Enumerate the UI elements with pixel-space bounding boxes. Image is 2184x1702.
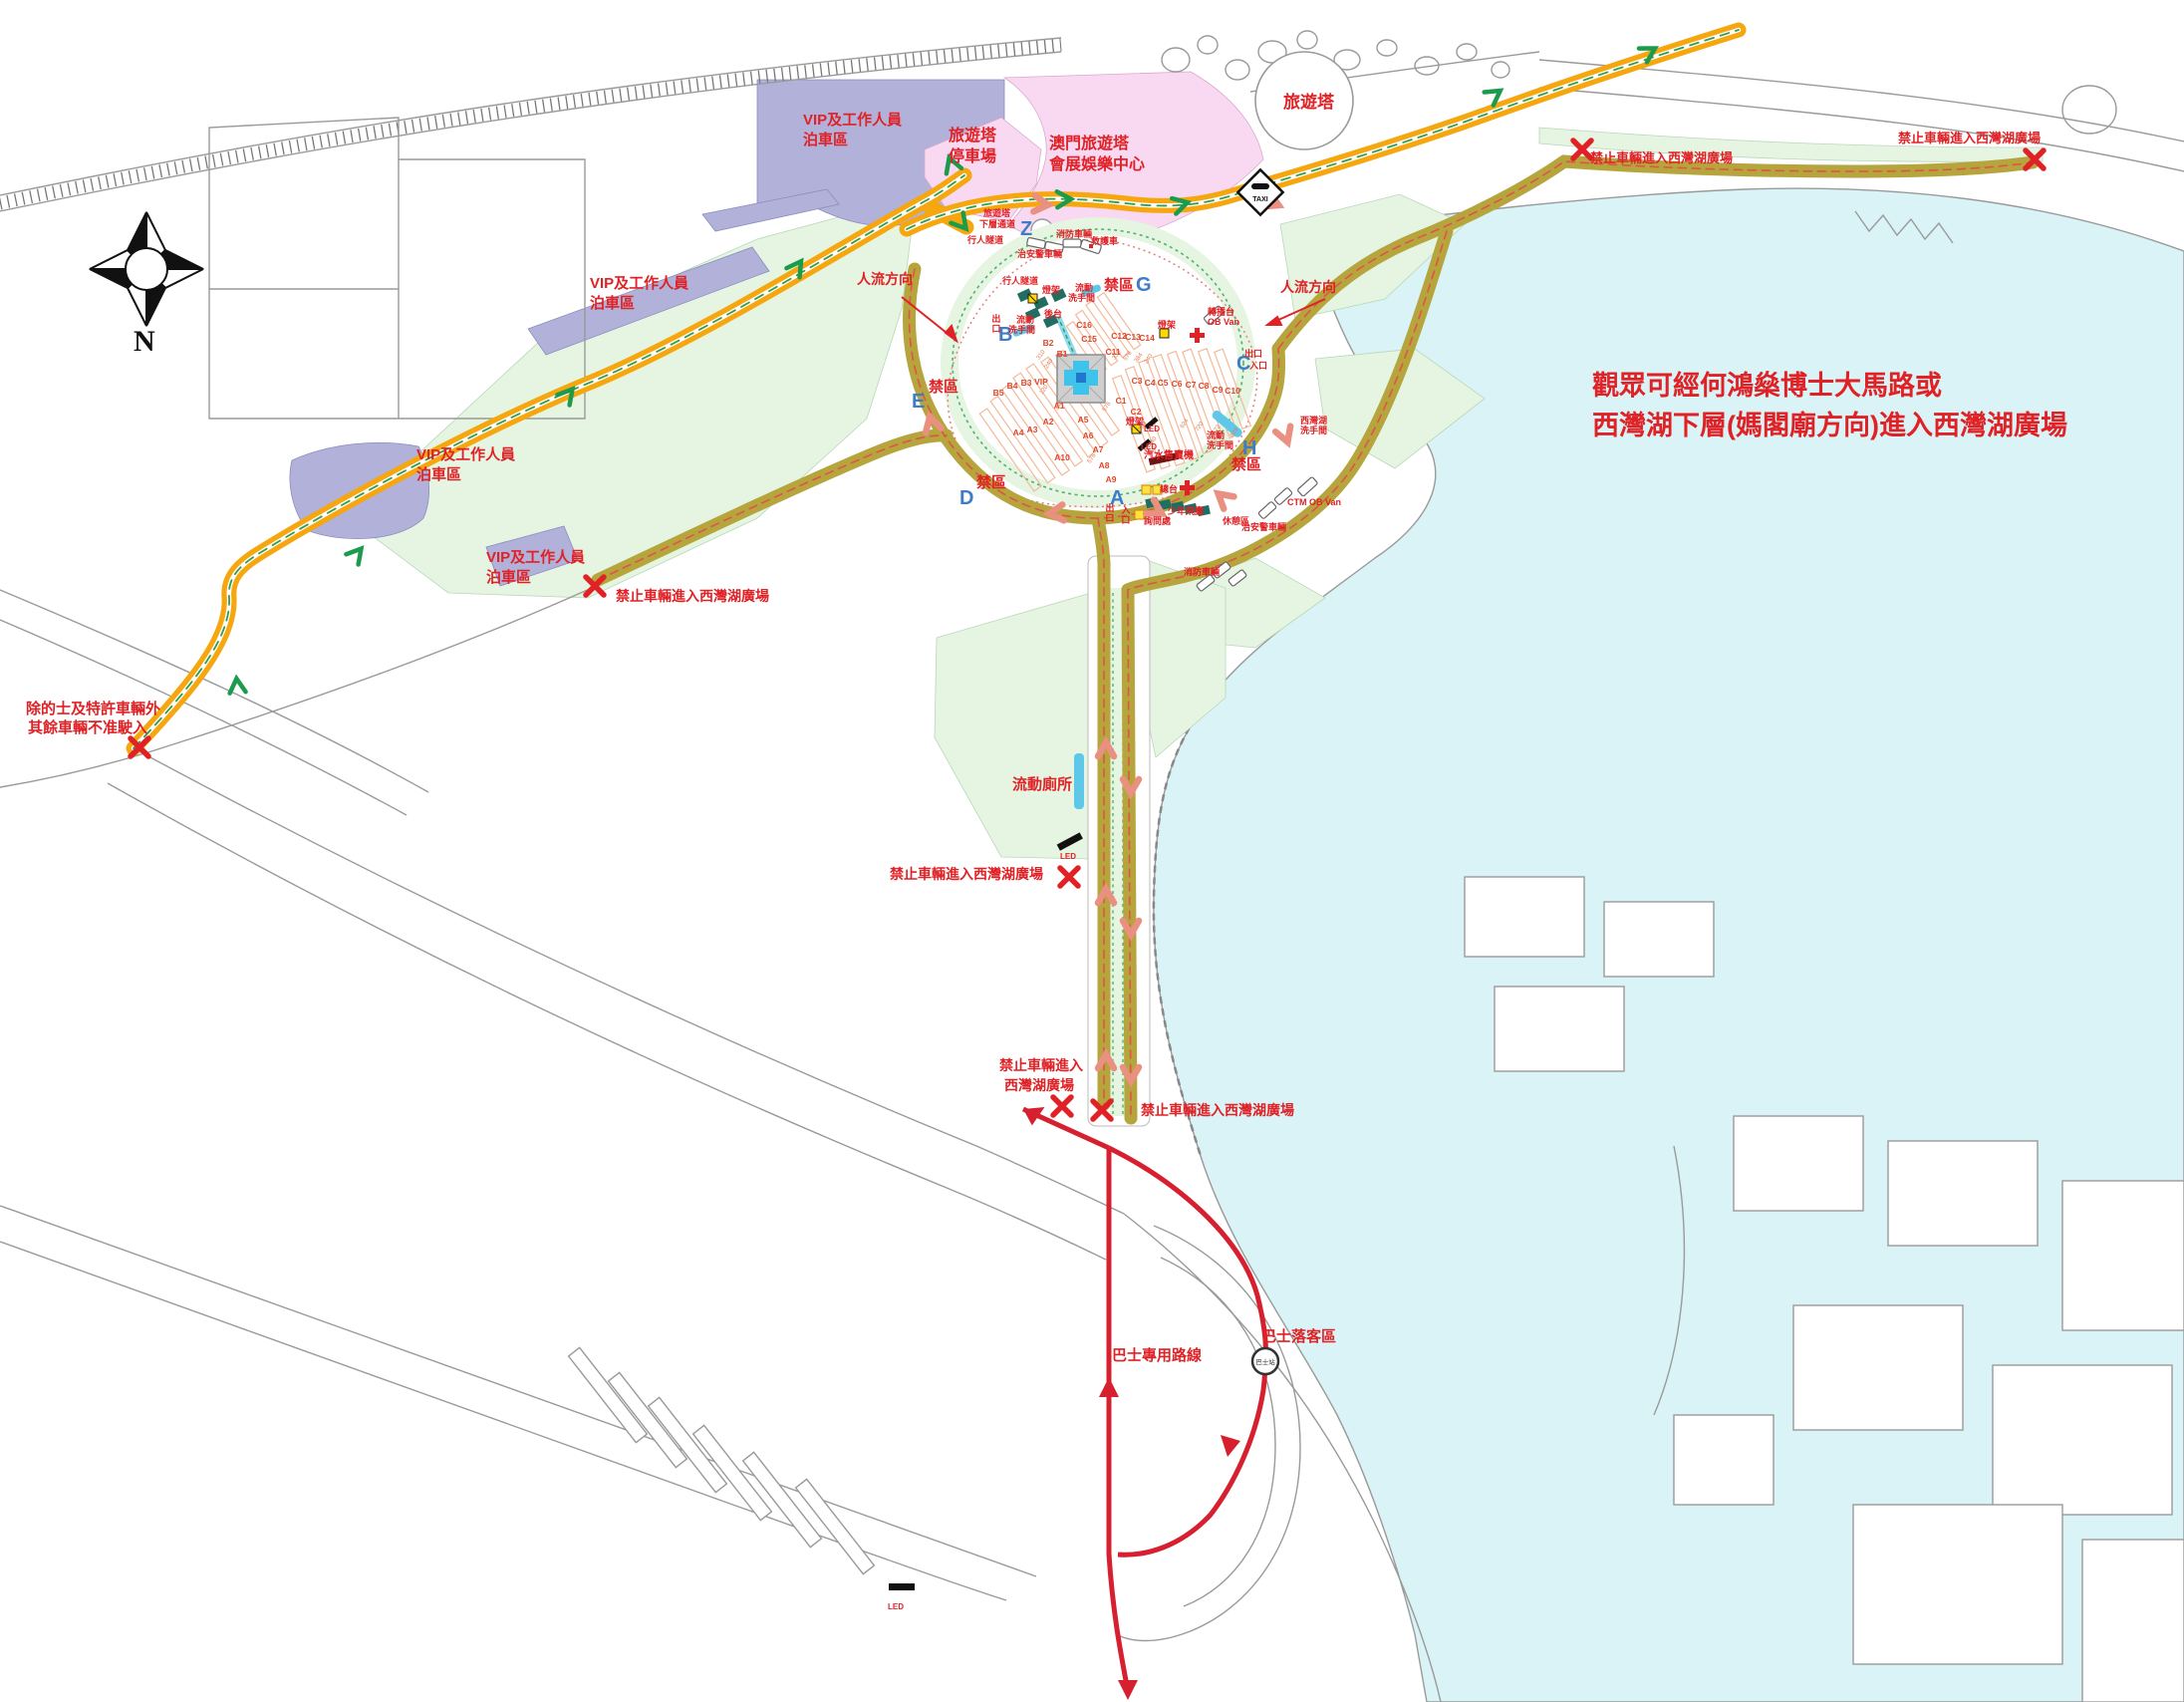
tower-label: 旅遊塔	[1283, 93, 1334, 113]
seat-section-label: C2	[1131, 407, 1142, 417]
mobile-toilet-label: 流動	[1016, 315, 1034, 325]
zone-letter-h: H	[1242, 438, 1256, 458]
taxi-only-label: 除的士及特許車輛外	[26, 701, 160, 717]
seat-section-label: A6	[1083, 430, 1094, 440]
seat-section-label: A7	[1093, 444, 1104, 454]
fire-vehicles-label: 消防車輛	[1184, 567, 1220, 577]
bus-route-arrows	[1021, 1104, 1240, 1700]
flow-direction-label: 人流方向	[857, 271, 913, 287]
seat-section-label: B1	[1057, 349, 1068, 359]
seat-section-label: A9	[1106, 474, 1117, 484]
seat-section-label: B5	[993, 388, 1004, 398]
light-rig-label: 燈架	[1158, 320, 1176, 330]
zone-letter-d: D	[959, 488, 973, 508]
vip-parking-label: 泊車區	[803, 132, 848, 148]
ctm-ob-van-label: CTM OB Van	[1287, 497, 1341, 507]
police-vehicles-label: 治安警車輛	[1241, 522, 1286, 532]
vip-parking-label: 泊車區	[416, 466, 461, 483]
convention-centre-label: 澳門旅遊塔	[1049, 136, 1129, 153]
zone-letter-g: G	[1136, 275, 1152, 295]
vip-parking-label: VIP及工作人員	[416, 446, 515, 463]
seat-section-label: C8	[1199, 381, 1210, 391]
bus-stop-marker: 巴士站	[1252, 1348, 1278, 1374]
vip-parking-label: 泊車區	[486, 569, 531, 586]
flow-direction-label: 人流方向	[1280, 279, 1336, 295]
tower-carpark-label: 停車場	[949, 148, 996, 166]
seat-section-label: C16	[1076, 320, 1092, 330]
vip-parking-label: VIP及工作人員	[590, 275, 688, 292]
event-traffic-map: TAXI 巴士站 A1 A2 A3 A4 A5 A6 A7 A8 A9 A10 …	[0, 0, 2184, 1702]
lake-wc-label: 洗手間	[1300, 425, 1327, 435]
seat-section-label: C5	[1158, 378, 1169, 388]
seat-section-label: B3	[1021, 378, 1032, 388]
lake-wc-label: 西灣湖	[1300, 416, 1327, 425]
seat-section-label: C7	[1186, 380, 1197, 390]
exit-label: 出口	[1244, 349, 1262, 359]
youth-eagles-label: 少年飛鷹	[1168, 506, 1204, 516]
seat-section-label: A4	[1013, 427, 1024, 437]
police-vehicles-label: 治安警車輛	[1017, 249, 1062, 259]
convention-centre-label: 會展娛樂中心	[1049, 156, 1145, 174]
no-entry-label: 禁止車輛進入西灣湖廣場	[1898, 132, 2041, 146]
light-rig-label: 燈架	[1042, 285, 1060, 295]
taxi-sign-text: TAXI	[1252, 196, 1267, 203]
entry-notice-line2: 西灣湖下層(媽閣廟方向)進入西灣湖廣場	[1592, 411, 2067, 441]
led-label: LED	[1144, 425, 1160, 433]
exit-label: 出口	[1104, 503, 1114, 523]
mobile-toilet-label: 流動	[1075, 283, 1093, 293]
no-entry-label: 禁止車輛進入西灣湖廣場	[1590, 151, 1733, 166]
led-label: LED	[1060, 852, 1076, 861]
led-label: LED	[888, 1602, 904, 1611]
seat-section-label: C10	[1225, 386, 1240, 396]
mobile-toilet-label: 洗手間	[1207, 440, 1233, 450]
portable-wc-label: 流動廁所	[1012, 776, 1072, 793]
exit-label: 出口	[990, 314, 1000, 334]
mobile-toilet-label: 洗手間	[1008, 325, 1035, 335]
seat-section-label: C1	[1116, 396, 1127, 406]
compass-rose	[90, 212, 203, 326]
no-entry-label: 禁止車輛進入	[999, 1057, 1083, 1073]
pedestrian-tunnel-label: 行人隧道	[1002, 276, 1038, 286]
seat-section-label: VIP	[1034, 377, 1048, 387]
mobile-toilet-label: 洗手間	[1068, 293, 1095, 303]
ob-van-label: OB Van	[1208, 317, 1239, 327]
seat-section-label: A3	[1027, 425, 1038, 434]
compass-north-label: N	[134, 325, 155, 359]
ob-van-label: 轉播台	[1208, 307, 1234, 317]
seat-section-label: A8	[1099, 460, 1110, 470]
led-label: LED	[1141, 442, 1157, 451]
no-entry-label: 禁止車輛進入西灣湖廣場	[1141, 1102, 1294, 1118]
restricted-zone-label: 禁區	[929, 379, 958, 396]
piers	[569, 1347, 875, 1573]
seat-section-label: C9	[1213, 385, 1224, 395]
entrance-label: 入口	[1249, 361, 1267, 371]
mobile-toilet-label: 流動	[1207, 430, 1225, 440]
no-entry-label: 禁止車輛進入西灣湖廣場	[616, 588, 769, 604]
vending-label: 汽水售賣機	[1144, 450, 1194, 462]
vip-parking-label: VIP及工作人員	[486, 549, 585, 566]
seat-section-label: C4	[1145, 378, 1156, 388]
seat-section-label: B2	[1043, 338, 1054, 348]
restricted-zone-label: 禁區	[1104, 277, 1134, 294]
main-desk-label: 總台	[1160, 484, 1178, 494]
light-rig-label: 燈架	[1126, 417, 1144, 426]
seat-section-label: A2	[1043, 417, 1054, 426]
backstage-label: 後台	[1044, 309, 1062, 319]
vip-parking-label: VIP及工作人員	[803, 112, 902, 129]
restricted-zone-label: 禁區	[976, 474, 1006, 491]
map-canvas: TAXI 巴士站 A1 A2 A3 A4 A5 A6 A7 A8 A9 A10 …	[0, 0, 2184, 1702]
entry-notice-line1: 觀眾可經何鴻燊博士大馬路或	[1592, 371, 1942, 402]
bus-dropoff-label: 巴士落客區	[1261, 1328, 1336, 1345]
bus-route-label: 巴士專用路線	[1112, 1347, 1202, 1364]
seat-section-label: B4	[1007, 381, 1018, 391]
ambulance-label: 救護車	[1091, 236, 1118, 246]
vip-parking-label: 泊車區	[590, 295, 635, 312]
pedestrian-tunnel-label: 行人隧道	[967, 235, 1003, 245]
tower-lower-passage-label: 旅遊塔	[983, 208, 1010, 218]
tower-lower-passage-label: 下層通道	[979, 219, 1015, 229]
bus-stop-text: 巴士站	[1255, 1357, 1275, 1366]
no-entry-label: 西灣湖廣場	[1004, 1077, 1074, 1093]
seat-section-label: C14	[1139, 333, 1155, 343]
seat-section-label: C3	[1132, 376, 1143, 386]
zone-letter-z: Z	[1020, 219, 1032, 239]
fire-vehicles-label: 消防車輛	[1056, 229, 1092, 239]
tower-carpark-label: 旅遊塔	[949, 128, 996, 145]
taxi-only-label: 其餘車輛不准駛入	[28, 719, 147, 736]
seat-section-label: A5	[1078, 415, 1089, 425]
entrance-label: 入口	[1120, 505, 1130, 525]
no-entry-label: 禁止車輛進入西灣湖廣場	[890, 866, 1043, 882]
zone-letter-e: E	[912, 392, 925, 412]
seat-section-label: A10	[1054, 452, 1070, 462]
info-desk-label: 詢問處	[1144, 516, 1171, 526]
seat-section-label: C15	[1081, 334, 1097, 344]
seat-section-label: C6	[1172, 379, 1183, 389]
